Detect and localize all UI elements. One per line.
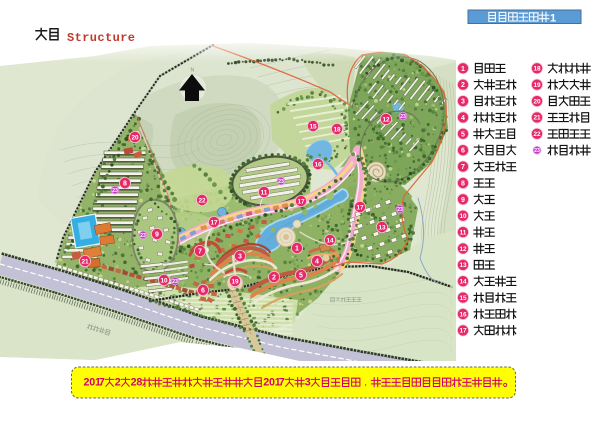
- svg-text:13: 13: [459, 262, 467, 269]
- svg-text:12: 12: [459, 246, 467, 253]
- svg-text:3: 3: [461, 99, 465, 106]
- svg-text:7: 7: [198, 249, 202, 256]
- svg-text:23: 23: [400, 114, 406, 120]
- svg-text:17: 17: [459, 328, 467, 335]
- svg-text:2: 2: [461, 82, 465, 89]
- svg-text:23: 23: [534, 148, 540, 154]
- svg-text:1: 1: [295, 246, 299, 253]
- svg-text:2: 2: [272, 275, 276, 282]
- svg-text:8: 8: [136, 377, 142, 389]
- svg-text:20: 20: [533, 98, 541, 105]
- svg-text:23: 23: [140, 233, 146, 239]
- svg-text:15: 15: [309, 123, 317, 130]
- svg-text:16: 16: [459, 311, 467, 318]
- svg-text:22: 22: [533, 131, 541, 138]
- svg-text:2: 2: [115, 377, 121, 389]
- svg-text:6: 6: [201, 288, 205, 295]
- svg-text:8: 8: [123, 181, 127, 188]
- svg-text:9: 9: [155, 232, 159, 239]
- svg-text:18: 18: [533, 66, 541, 73]
- svg-text:7: 7: [279, 377, 285, 389]
- svg-text:19: 19: [533, 82, 541, 89]
- svg-text:10: 10: [459, 213, 467, 220]
- svg-text:23: 23: [112, 188, 118, 194]
- svg-text:21: 21: [81, 258, 89, 265]
- svg-text:13: 13: [378, 224, 386, 231]
- svg-text:14: 14: [459, 279, 467, 286]
- svg-text:19: 19: [231, 278, 239, 285]
- svg-text:12: 12: [382, 116, 390, 123]
- svg-text:5: 5: [461, 131, 465, 138]
- svg-text:11: 11: [460, 229, 467, 236]
- svg-text:11: 11: [261, 189, 268, 196]
- svg-text:N: N: [191, 68, 195, 74]
- svg-text:17: 17: [210, 219, 218, 226]
- svg-text:21: 21: [533, 115, 541, 122]
- svg-text:17: 17: [356, 204, 364, 211]
- svg-text:20: 20: [131, 134, 139, 141]
- svg-text:4: 4: [315, 259, 319, 266]
- svg-text:6: 6: [461, 148, 465, 155]
- svg-text:7: 7: [99, 377, 105, 389]
- svg-text:4: 4: [461, 115, 465, 122]
- svg-text:16: 16: [314, 161, 322, 168]
- svg-text:15: 15: [459, 295, 467, 302]
- svg-text:14: 14: [326, 237, 334, 244]
- svg-text:9: 9: [461, 197, 465, 204]
- svg-text:17: 17: [297, 198, 305, 205]
- svg-text:5: 5: [299, 273, 303, 280]
- svg-text:3: 3: [238, 254, 242, 261]
- svg-text:3: 3: [305, 377, 311, 389]
- svg-text:7: 7: [461, 164, 465, 171]
- svg-text:23: 23: [397, 207, 403, 213]
- svg-text:8: 8: [461, 181, 465, 188]
- svg-text:22: 22: [198, 197, 206, 204]
- svg-text:23: 23: [172, 279, 178, 285]
- svg-text:10: 10: [160, 277, 168, 284]
- svg-text:23: 23: [278, 179, 284, 185]
- svg-text:Structure: Structure: [67, 31, 135, 45]
- svg-text:1: 1: [461, 66, 465, 73]
- svg-text:18: 18: [333, 126, 341, 133]
- svg-text:1: 1: [550, 13, 556, 25]
